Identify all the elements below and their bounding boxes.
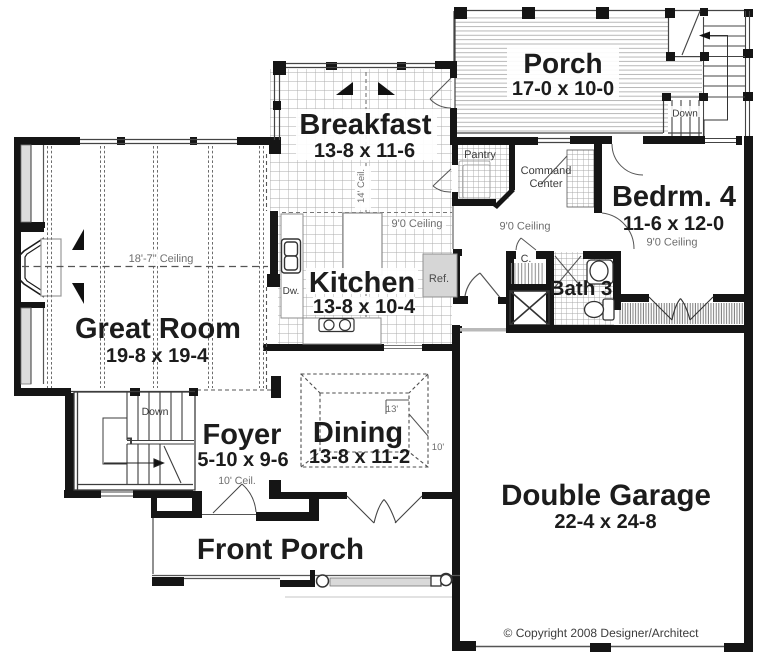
svg-text:Kitchen: Kitchen: [309, 267, 415, 299]
svg-text:Bedrm. 4: Bedrm. 4: [612, 181, 736, 213]
svg-text:Down: Down: [672, 109, 698, 120]
svg-text:Double Garage: Double Garage: [501, 479, 711, 512]
svg-text:Front Porch: Front Porch: [197, 533, 364, 566]
svg-text:Dining: Dining: [313, 417, 403, 449]
svg-text:© Copyright 2008 Designer/Arch: © Copyright 2008 Designer/Architect: [504, 626, 700, 640]
svg-text:Pantry: Pantry: [464, 149, 496, 161]
svg-text:Porch: Porch: [523, 48, 602, 79]
svg-text:10': 10': [432, 442, 445, 453]
svg-text:19-8 x 19-4: 19-8 x 19-4: [106, 345, 209, 367]
svg-text:C.: C.: [521, 253, 532, 265]
svg-text:13-8 x 11-6: 13-8 x 11-6: [314, 140, 415, 162]
svg-text:Bath 3: Bath 3: [550, 277, 613, 300]
svg-text:9'0 Ceiling: 9'0 Ceiling: [391, 218, 442, 230]
svg-text:13-8 x 10-4: 13-8 x 10-4: [313, 296, 416, 318]
svg-text:Great Room: Great Room: [75, 313, 241, 345]
svg-text:17-0 x 10-0: 17-0 x 10-0: [512, 78, 614, 100]
svg-text:Center: Center: [529, 178, 562, 190]
svg-text:9'0 Ceiling: 9'0 Ceiling: [499, 221, 550, 233]
svg-text:Foyer: Foyer: [203, 419, 282, 451]
svg-text:14' Ceil.: 14' Ceil.: [356, 169, 367, 203]
svg-text:13-8 x 11-2: 13-8 x 11-2: [309, 446, 410, 468]
svg-text:Dw.: Dw.: [283, 286, 300, 297]
svg-text:Down: Down: [142, 406, 169, 418]
svg-text:10' Ceil.: 10' Ceil.: [218, 475, 256, 487]
svg-text:11-6 x 12-0: 11-6 x 12-0: [623, 213, 724, 235]
svg-text:13': 13': [386, 404, 399, 415]
svg-text:9'0 Ceiling: 9'0 Ceiling: [646, 237, 697, 249]
svg-text:Command: Command: [521, 165, 572, 177]
svg-text:22-4 x 24-8: 22-4 x 24-8: [554, 511, 656, 533]
svg-text:5-10 x 9-6: 5-10 x 9-6: [197, 449, 288, 471]
svg-text:Ref.: Ref.: [429, 273, 449, 285]
svg-text:Breakfast: Breakfast: [299, 109, 432, 141]
svg-text:18'-7" Ceiling: 18'-7" Ceiling: [129, 253, 194, 265]
